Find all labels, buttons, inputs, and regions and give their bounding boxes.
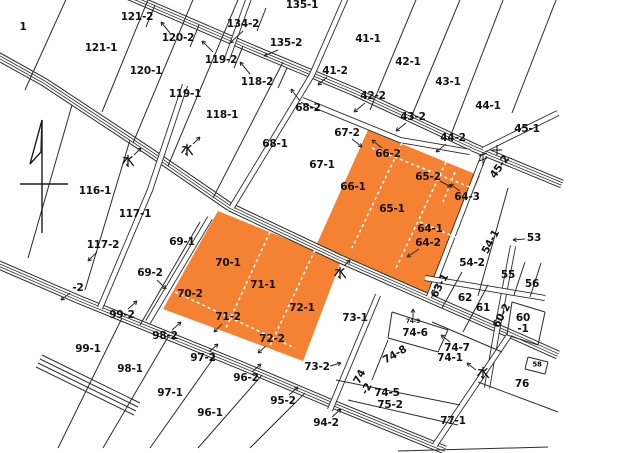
parcel-label-44-2: 44-2 (440, 133, 465, 144)
parcel-label-98-1: 98-1 (117, 364, 142, 375)
parcel-label-61: 61 (476, 303, 490, 314)
parcel-label-97-2: 97-2 (190, 353, 215, 364)
parcel-label-60: 60 (516, 313, 530, 324)
parcel-label-121-1: 121-1 (85, 43, 118, 54)
parcel-label-58: 58 (532, 362, 541, 369)
water-kanji-label (334, 267, 347, 280)
parcel-label-77-1: 77-1 (440, 416, 465, 427)
parcel-label-74-9: 74-9 (406, 319, 420, 325)
parcel-label-69-2: 69-2 (137, 268, 162, 279)
parcel-label-68-2: 68-2 (295, 103, 320, 114)
map-linework (0, 0, 640, 453)
parcel-label-99-2: 99-2 (109, 310, 134, 321)
parcel-label-41-2: 41-2 (322, 66, 347, 77)
parcel-label-42-1: 42-1 (395, 57, 420, 68)
parcel-label-66-1: 66-1 (340, 182, 365, 193)
parcel-label-71-2: 71-2 (215, 312, 240, 323)
parcel-label-42-2: 42-2 (360, 91, 385, 102)
parcel-label--1: -1 (517, 324, 528, 335)
parcel-label-98-2: 98-2 (152, 331, 177, 342)
parcel-label-97-1: 97-1 (157, 388, 182, 399)
parcel-label-73-2: 73-2 (304, 362, 329, 373)
parcel-label-74-6: 74-6 (402, 328, 427, 339)
parcel-label-56: 56 (525, 279, 539, 290)
parcel-label-118-2: 118-2 (241, 77, 274, 88)
parcel-label-67-2: 67-2 (334, 128, 359, 139)
parcel-label-99-1: 99-1 (75, 344, 100, 355)
parcel-label-72-1: 72-1 (289, 303, 314, 314)
parcel-label-73-1: 73-1 (342, 313, 367, 324)
parcel-label-68-1: 68-1 (262, 139, 287, 150)
parcel-label-134-2: 134-2 (227, 19, 260, 30)
parcel-label-64-2: 64-2 (415, 238, 440, 249)
parcel-label-70-2: 70-2 (177, 289, 202, 300)
parcel-label-135-2: 135-2 (270, 38, 303, 49)
parcel-label-66-2: 66-2 (375, 149, 400, 160)
parcel-label--2: -2 (72, 283, 83, 294)
roads-group (0, 0, 562, 450)
parcel-label-44-1: 44-1 (475, 101, 500, 112)
parcel-label-117-2: 117-2 (87, 240, 120, 251)
parcel-label-74-1: 74-1 (437, 353, 462, 364)
water-kanji-label (181, 144, 194, 157)
parcel-label-70-1: 70-1 (215, 258, 240, 269)
parcel-label-67-1: 67-1 (309, 160, 334, 171)
parcel-label-121-2: 121-2 (121, 12, 154, 23)
parcel-label-41-1: 41-1 (355, 34, 380, 45)
parcel-label-118-1: 118-1 (206, 110, 239, 121)
parcel-label-96-1: 96-1 (197, 408, 222, 419)
parcel-label-75-2: 75-2 (377, 400, 402, 411)
water-kanji-label (477, 367, 490, 380)
parcel-label-65-1: 65-1 (379, 204, 404, 215)
parcel-label-65-2: 65-2 (415, 172, 440, 183)
water-kanji-label (122, 155, 135, 168)
parcel-label-45-1: 45-1 (514, 124, 539, 135)
parcel-label-119-2: 119-2 (205, 55, 238, 66)
parcel-label-94-2: 94-2 (313, 418, 338, 429)
parcel-label-76: 76 (515, 379, 529, 390)
cadastral-map: 1121-2134-2135-1120-2135-241-1121-1119-2… (0, 0, 640, 453)
parcel-label-53: 53 (527, 233, 541, 244)
parcel-label-119-1: 119-1 (169, 89, 202, 100)
parcel-label-54-2: 54-2 (459, 258, 484, 269)
parcel-label-43-1: 43-1 (435, 77, 460, 88)
parcel-label-135-1: 135-1 (286, 0, 319, 10)
parcel-label-72-2: 72-2 (259, 334, 284, 345)
parcel-label-116-1: 116-1 (79, 186, 112, 197)
parcel-label-117-1: 117-1 (119, 209, 152, 220)
north-arrow-icon (20, 120, 68, 233)
parcel-label-1: 1 (19, 22, 26, 33)
parcel-label-43-2: 43-2 (400, 112, 425, 123)
parcel-label-69-1: 69-1 (169, 237, 194, 248)
parcel-label-71-1: 71-1 (250, 280, 275, 291)
parcel-label-95-2: 95-2 (270, 396, 295, 407)
parcel-label-120-2: 120-2 (162, 33, 195, 44)
parcel-label-64-3: 64-3 (454, 192, 479, 203)
parcel-label-64-1: 64-1 (417, 224, 442, 235)
parcel-label-55: 55 (501, 270, 515, 281)
parcel-label-120-1: 120-1 (130, 66, 163, 77)
parcel-label-74-5: 74-5 (374, 388, 399, 399)
parcel-label-96-2: 96-2 (233, 373, 258, 384)
parcel-label-62: 62 (458, 293, 472, 304)
